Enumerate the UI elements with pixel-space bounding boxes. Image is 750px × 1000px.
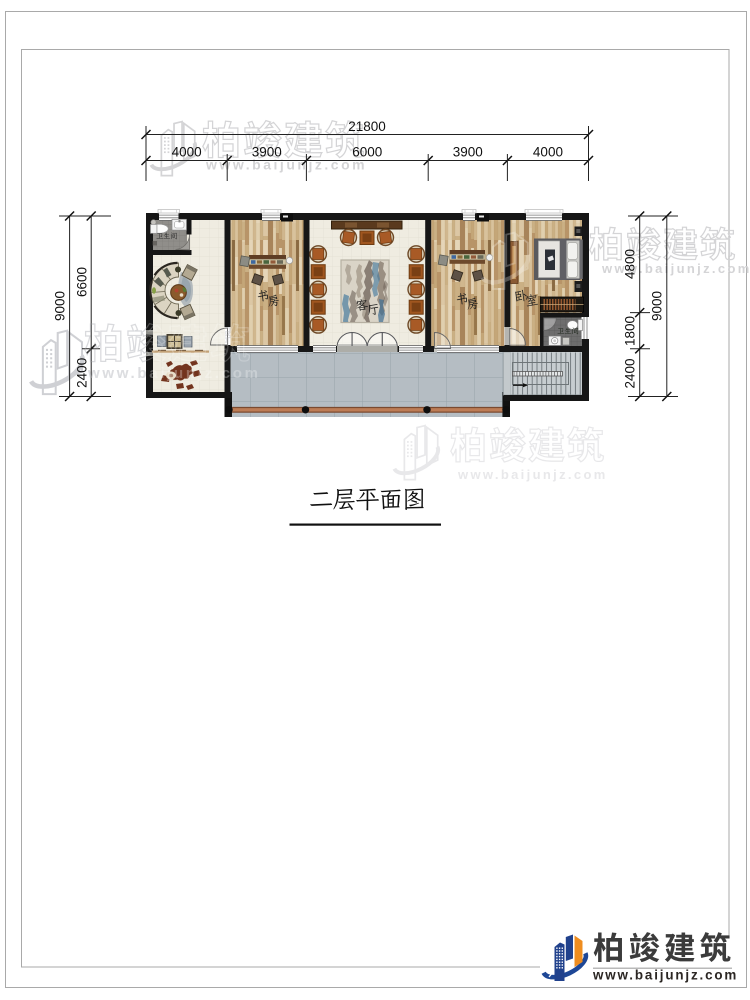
svg-text:www.baijunjz.com: www.baijunjz.com (87, 365, 261, 382)
svg-text:www.baijunjz.com: www.baijunjz.com (457, 467, 608, 482)
svg-text:3900: 3900 (252, 145, 282, 160)
svg-text:4000: 4000 (533, 145, 563, 160)
svg-text:www.baijunjz.com: www.baijunjz.com (592, 968, 738, 983)
svg-text:4800: 4800 (623, 249, 638, 279)
svg-text:9000: 9000 (650, 291, 665, 321)
svg-text:6600: 6600 (75, 267, 90, 297)
svg-text:2400: 2400 (623, 358, 638, 388)
svg-text:21800: 21800 (348, 119, 386, 134)
svg-text:1800: 1800 (623, 316, 638, 346)
svg-text:9000: 9000 (53, 291, 68, 321)
svg-text:6000: 6000 (352, 145, 382, 160)
svg-text:3900: 3900 (453, 145, 483, 160)
svg-text:4000: 4000 (172, 145, 202, 160)
